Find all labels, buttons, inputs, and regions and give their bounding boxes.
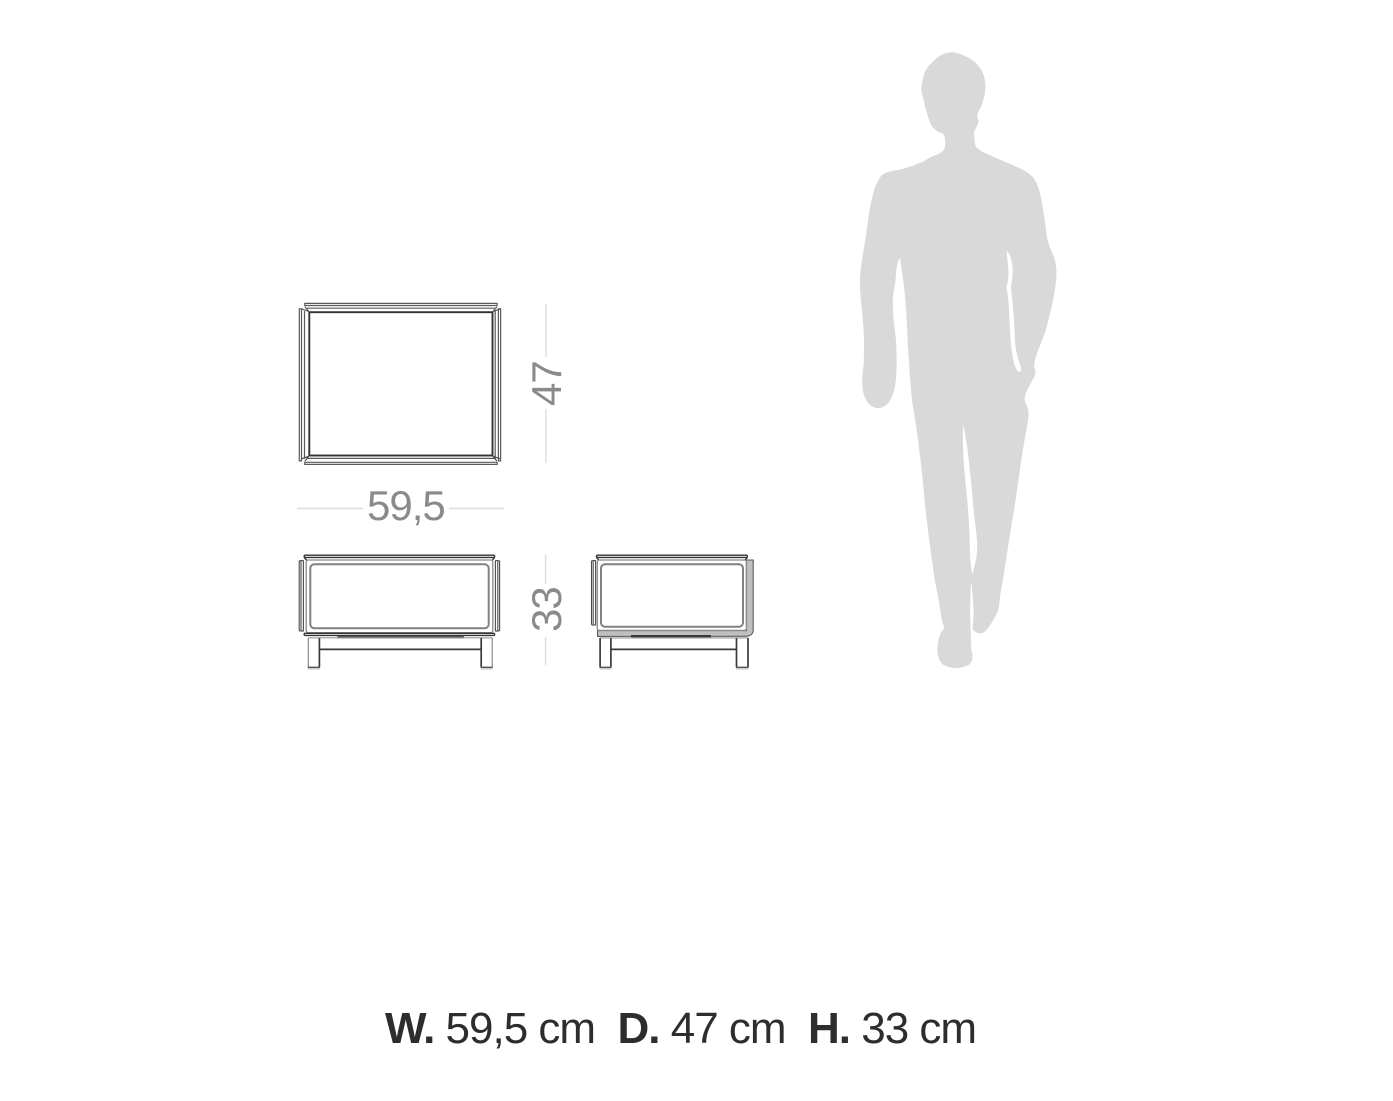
svg-text:W. 59,5 cm D. 47 cm H. 33 cm: W. 59,5 cm D. 47 cm H. 33 cm [385,1004,976,1053]
svg-text:33: 33 [523,587,570,632]
svg-text:47: 47 [523,361,570,406]
svg-text:59,5: 59,5 [367,482,445,529]
